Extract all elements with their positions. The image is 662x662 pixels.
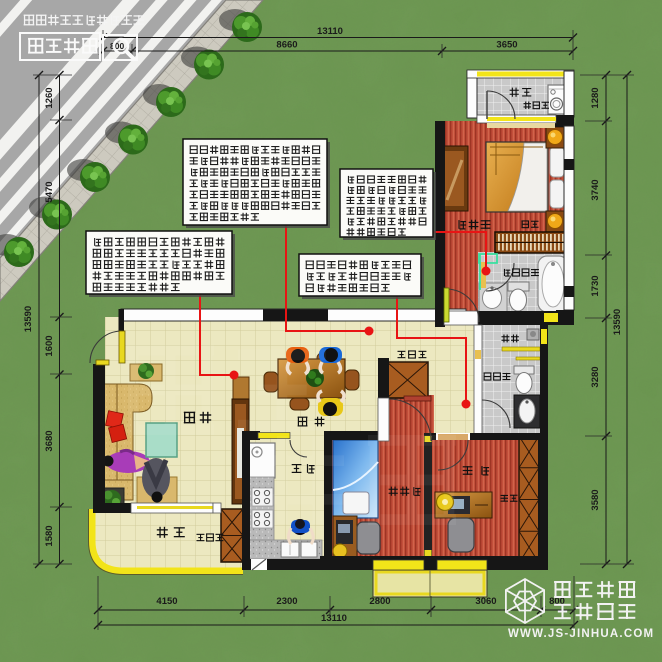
svg-text:3580: 3580: [590, 489, 601, 510]
svg-text:WWW.JS-JINHUA.COM: WWW.JS-JINHUA.COM: [508, 628, 654, 640]
svg-text:1600: 1600: [44, 335, 55, 356]
svg-text:1580: 1580: [44, 525, 55, 546]
svg-text:13110: 13110: [321, 613, 347, 624]
svg-text:3280: 3280: [590, 366, 601, 387]
svg-text:3060: 3060: [475, 596, 496, 607]
svg-text:8660: 8660: [276, 40, 297, 51]
svg-text:13110: 13110: [317, 26, 343, 37]
svg-text:3740: 3740: [590, 179, 601, 200]
svg-text:2800: 2800: [369, 596, 390, 607]
svg-text:1280: 1280: [590, 87, 601, 108]
svg-text:5470: 5470: [44, 181, 55, 202]
svg-text:1260: 1260: [44, 87, 55, 108]
svg-text:1730: 1730: [590, 275, 601, 296]
svg-text:13590: 13590: [612, 309, 623, 335]
svg-text:13590: 13590: [23, 306, 34, 332]
svg-text:4150: 4150: [156, 596, 177, 607]
svg-text:800: 800: [110, 41, 124, 51]
svg-text:3650: 3650: [496, 40, 517, 51]
svg-text:2300: 2300: [276, 596, 297, 607]
svg-text:3680: 3680: [44, 430, 55, 451]
